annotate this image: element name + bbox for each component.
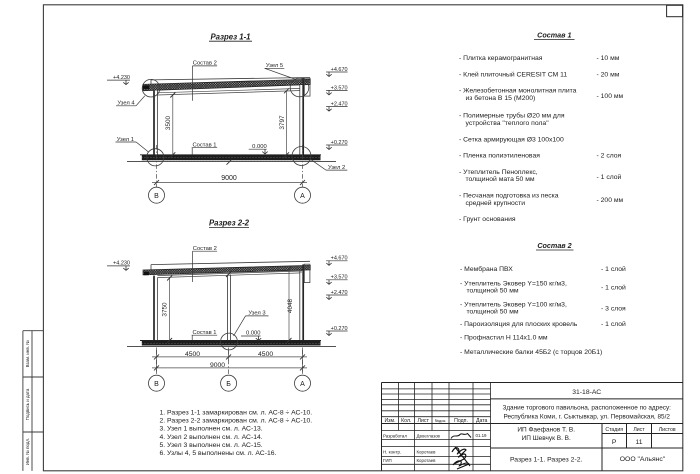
svg-text:ООО "Альянс": ООО "Альянс" [620, 456, 666, 463]
svg-text:- Песчаная подготовка из песка: - Песчаная подготовка из песка [459, 193, 559, 200]
svg-text:Листов: Листов [659, 427, 676, 433]
svg-text:Подпись и дата: Подпись и дата [25, 388, 30, 420]
svg-text:- Полимерные трубы Ø20 мм для: - Полимерные трубы Ø20 мм для [459, 112, 565, 120]
svg-text:- 1 слой: - 1 слой [601, 265, 626, 273]
svg-text:устройства "теплого пола": устройства "теплого пола" [466, 119, 550, 127]
svg-text:31-18-АС: 31-18-АС [572, 389, 601, 396]
svg-text:- 3 слоя: - 3 слоя [601, 306, 626, 313]
svg-text:толщиной мата 50 мм: толщиной мата 50 мм [466, 175, 535, 183]
svg-text:А: А [300, 381, 305, 388]
svg-text:Лист: Лист [418, 418, 430, 424]
svg-text:- Утеплитель Эковер Y=150 кг/м: - Утеплитель Эковер Y=150 кг/м3, [460, 281, 567, 288]
svg-text:4048: 4048 [287, 298, 294, 313]
svg-text:Изм.: Изм. [384, 418, 395, 424]
svg-text:Разрез 2-2: Разрез 2-2 [209, 219, 250, 228]
svg-text:11: 11 [635, 439, 642, 446]
svg-text:- Пароизоляция для плоских кро: - Пароизоляция для плоских кровель [460, 321, 578, 328]
svg-text:Взам. инв. №: Взам. инв. № [25, 340, 30, 367]
svg-text:В: В [154, 193, 159, 200]
svg-text:6. Узлы 4, 5 выполнены см. л.: 6. Узлы 4, 5 выполнены см. л. АС-16. [160, 450, 277, 457]
svg-text:из бетона В 15 (М200): из бетона В 15 (М200) [466, 94, 536, 102]
svg-text:- Клей плиточный CERESIT СМ 11: - Клей плиточный CERESIT СМ 11 [459, 71, 567, 79]
svg-text:- Пленка полиэтиленовая: - Пленка полиэтиленовая [459, 152, 540, 159]
svg-text:Двоеглазов: Двоеглазов [417, 433, 441, 438]
svg-text:ГИП: ГИП [383, 458, 392, 463]
svg-text:Дата: Дата [476, 418, 488, 424]
svg-text:3750: 3750 [162, 302, 169, 317]
svg-text:- 1 слой: - 1 слой [597, 173, 622, 181]
svg-text:Инв. № подл.: Инв. № подл. [25, 438, 30, 465]
svg-text:толщиной 50 мм: толщиной 50 мм [467, 287, 519, 295]
svg-text:В: В [154, 381, 159, 388]
svg-text:- 100 мм: - 100 мм [597, 93, 624, 100]
svg-text:А: А [300, 193, 305, 200]
svg-text:Состав 1: Состав 1 [537, 31, 571, 40]
svg-text:- 20 мм: - 20 мм [597, 72, 620, 79]
svg-text:№док.: №док. [435, 418, 447, 423]
svg-text:4500: 4500 [258, 351, 273, 358]
svg-text:толщиной 50 мм: толщиной 50 мм [467, 307, 519, 315]
svg-text:Республика Коми, г. Сыктывкар,: Республика Коми, г. Сыктывкар, ул. Перво… [503, 412, 670, 420]
svg-text:Коротаев: Коротаев [417, 450, 437, 455]
svg-text:Стадия: Стадия [605, 427, 623, 433]
svg-text:3797: 3797 [279, 115, 286, 130]
svg-text:- Мембрана ПВХ: - Мембрана ПВХ [460, 265, 513, 273]
svg-text:5. Узел 3 выполнен см. л. АС-1: 5. Узел 3 выполнен см. л. АС-15. [160, 442, 263, 449]
svg-text:средней крупности: средней крупности [466, 199, 526, 207]
svg-text:Разрез 1-1: Разрез 1-1 [210, 32, 250, 41]
svg-text:- Утеплитель Эковер Y=100 кг/м: - Утеплитель Эковер Y=100 кг/м3, [460, 301, 567, 308]
svg-text:9000: 9000 [221, 175, 237, 182]
svg-text:- 10 мм: - 10 мм [597, 55, 620, 62]
svg-text:- 1 слой: - 1 слой [601, 320, 626, 328]
svg-text:Разработал: Разработал [383, 433, 407, 438]
svg-text:- Железобетонная монолитная п: - Железобетонная монолитная плита [459, 87, 577, 95]
svg-text:Лист: Лист [633, 427, 645, 433]
svg-text:- Металлические балки 45Б2 (с: - Металлические балки 45Б2 (с торцов 20Б… [460, 348, 602, 356]
svg-text:1. Разрез 1-1 замаркирован см.: 1. Разрез 1-1 замаркирован см. л. АС-8 ÷… [160, 409, 313, 416]
svg-text:Б: Б [226, 381, 231, 388]
svg-text:ИП Фаефанов Т. В.: ИП Фаефанов Т. В. [517, 426, 575, 433]
svg-text:3. Узел 1 выполнен см. л. АС-1: 3. Узел 1 выполнен см. л. АС-13. [160, 426, 263, 433]
svg-text:Подп.: Подп. [454, 418, 468, 424]
svg-text:ИП Шевчук В. В.: ИП Шевчук В. В. [522, 435, 571, 442]
svg-text:- 200 мм: - 200 мм [597, 197, 624, 204]
svg-text:Кол.: Кол. [401, 418, 411, 424]
svg-text:- Профнастил Н 114x1.0 мм: - Профнастил Н 114x1.0 мм [460, 335, 548, 342]
svg-text:Здание торгового павильона, ра: Здание торгового павильона, расположенно… [502, 405, 671, 412]
svg-text:Коротаев: Коротаев [417, 458, 437, 463]
svg-text:9000: 9000 [210, 362, 225, 369]
svg-text:- Утеплитель Пеноплекс,: - Утеплитель Пеноплекс, [459, 169, 538, 176]
svg-text:Н. контр.: Н. контр. [383, 450, 401, 455]
svg-text:4. Узел 2 выполнен см. л. АС-1: 4. Узел 2 выполнен см. л. АС-14. [160, 434, 263, 441]
svg-text:- 1 слой: - 1 слой [601, 284, 626, 292]
svg-text:Состав 2: Состав 2 [537, 241, 571, 250]
svg-text:2. Разрез 2-2 замаркирован см.: 2. Разрез 2-2 замаркирован см. л. АС-8 ÷… [160, 418, 313, 425]
svg-text:- Сетка армирующая Ø3 100x100: - Сетка армирующая Ø3 100x100 [459, 136, 564, 143]
svg-text:4500: 4500 [185, 351, 200, 358]
svg-text:3500: 3500 [165, 115, 172, 130]
svg-text:- Плитка керамогранитная: - Плитка керамогранитная [459, 55, 543, 62]
svg-text:01.19: 01.19 [476, 433, 488, 438]
svg-text:Р: Р [612, 439, 617, 446]
svg-text:- 2 слоя: - 2 слоя [597, 152, 622, 159]
svg-text:Разрез 1-1. Разрез 2-2.: Разрез 1-1. Разрез 2-2. [510, 457, 583, 464]
svg-text:- Грунт основания: - Грунт основания [459, 216, 516, 223]
